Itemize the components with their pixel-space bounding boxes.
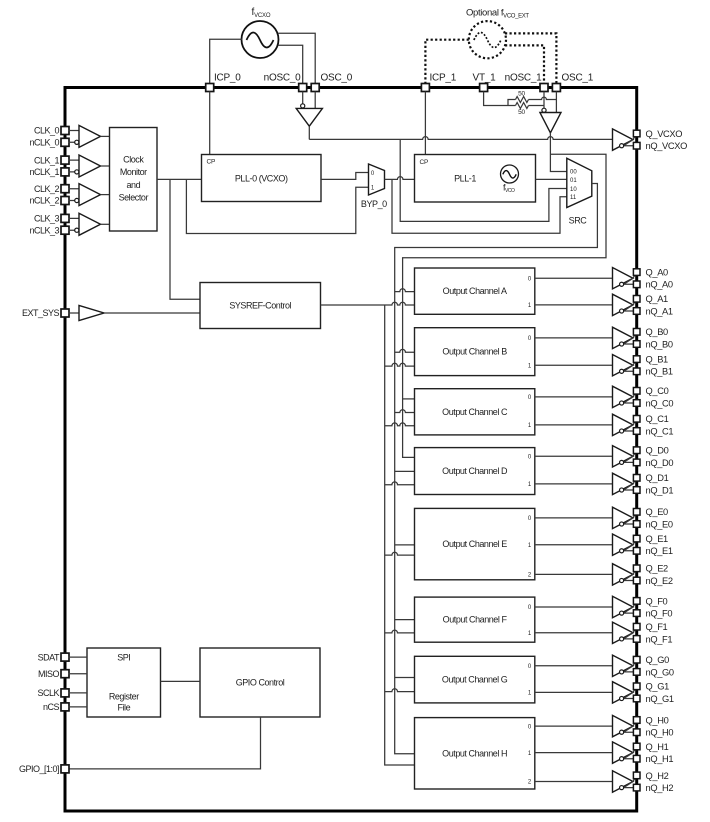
svg-text:Q_E1: Q_E1 bbox=[646, 534, 669, 544]
svg-text:Q_A1: Q_A1 bbox=[646, 294, 669, 304]
svg-text:SPI: SPI bbox=[117, 653, 130, 663]
svg-text:nCLK_3: nCLK_3 bbox=[29, 225, 59, 235]
svg-text:nCLK_0: nCLK_0 bbox=[29, 138, 59, 148]
svg-text:nCLK_1: nCLK_1 bbox=[29, 167, 59, 177]
svg-text:BYP_0: BYP_0 bbox=[361, 199, 387, 209]
svg-text:11: 11 bbox=[570, 195, 577, 201]
svg-text:PLL-1: PLL-1 bbox=[454, 173, 476, 183]
svg-text:nQ_C0: nQ_C0 bbox=[646, 398, 674, 408]
svg-text:Optional fVCO_EXT: Optional fVCO_EXT bbox=[466, 8, 529, 20]
svg-text:Q_F1: Q_F1 bbox=[646, 622, 668, 632]
svg-text:Q_C1: Q_C1 bbox=[646, 414, 669, 424]
svg-text:CP: CP bbox=[420, 159, 429, 166]
svg-text:GPIO_[1:0]: GPIO_[1:0] bbox=[19, 764, 59, 774]
svg-text:nQ_H2: nQ_H2 bbox=[646, 783, 674, 793]
svg-text:Q_H0: Q_H0 bbox=[646, 715, 669, 725]
svg-text:Q_E2: Q_E2 bbox=[646, 564, 669, 574]
svg-text:Clock: Clock bbox=[123, 155, 144, 165]
svg-text:nQ_G1: nQ_G1 bbox=[646, 694, 674, 704]
svg-text:nQ_A1: nQ_A1 bbox=[646, 306, 673, 316]
svg-text:50: 50 bbox=[518, 109, 525, 116]
svg-text:Selector: Selector bbox=[119, 193, 149, 203]
svg-text:Output Channel A: Output Channel A bbox=[443, 286, 507, 296]
svg-text:nQ_A0: nQ_A0 bbox=[646, 280, 673, 290]
svg-text:Q_G0: Q_G0 bbox=[646, 655, 670, 665]
svg-text:Register: Register bbox=[109, 692, 139, 702]
svg-text:OSC_1: OSC_1 bbox=[562, 73, 594, 84]
svg-text:nQ_B0: nQ_B0 bbox=[646, 339, 673, 349]
svg-text:nQ_D1: nQ_D1 bbox=[646, 485, 674, 495]
svg-text:Output Channel C: Output Channel C bbox=[442, 407, 508, 417]
svg-text:Q_D0: Q_D0 bbox=[646, 446, 669, 456]
svg-text:OSC_0: OSC_0 bbox=[321, 73, 353, 84]
svg-text:nQ_E1: nQ_E1 bbox=[646, 546, 673, 556]
svg-text:50: 50 bbox=[518, 91, 525, 98]
svg-text:Q_D1: Q_D1 bbox=[646, 473, 669, 483]
svg-text:SDAT: SDAT bbox=[38, 652, 60, 662]
svg-text:Output Channel F: Output Channel F bbox=[443, 615, 508, 625]
svg-text:Q_A0: Q_A0 bbox=[646, 268, 669, 278]
svg-text:01: 01 bbox=[570, 178, 577, 184]
svg-text:CP: CP bbox=[207, 159, 216, 166]
svg-text:MISO: MISO bbox=[38, 669, 60, 679]
svg-text:Output Channel G: Output Channel G bbox=[442, 675, 508, 685]
svg-text:nQ_C1: nQ_C1 bbox=[646, 426, 674, 436]
svg-text:Q_H1: Q_H1 bbox=[646, 742, 669, 752]
svg-text:and: and bbox=[126, 180, 140, 190]
svg-text:CLK_0: CLK_0 bbox=[34, 126, 60, 136]
svg-text:EXT_SYS: EXT_SYS bbox=[22, 308, 60, 318]
svg-text:Q_H2: Q_H2 bbox=[646, 771, 669, 781]
svg-text:ICP_0: ICP_0 bbox=[214, 73, 241, 84]
svg-text:nQ_D0: nQ_D0 bbox=[646, 458, 674, 468]
svg-text:SRC: SRC bbox=[569, 216, 588, 226]
svg-text:nCLK_2: nCLK_2 bbox=[29, 196, 59, 206]
svg-text:GPIO Control: GPIO Control bbox=[236, 678, 285, 688]
svg-text:Output Channel B: Output Channel B bbox=[442, 347, 507, 357]
svg-text:CLK_2: CLK_2 bbox=[34, 184, 60, 194]
svg-text:CLK_1: CLK_1 bbox=[34, 155, 60, 165]
svg-text:Monitor: Monitor bbox=[120, 167, 147, 177]
svg-text:CLK_3: CLK_3 bbox=[34, 214, 60, 224]
svg-text:nQ_H1: nQ_H1 bbox=[646, 754, 674, 764]
svg-text:00: 00 bbox=[570, 170, 577, 176]
svg-text:nCS: nCS bbox=[43, 702, 60, 712]
svg-text:nQ_E0: nQ_E0 bbox=[646, 519, 673, 529]
svg-text:Q_C0: Q_C0 bbox=[646, 386, 669, 396]
svg-text:fVCXO: fVCXO bbox=[252, 7, 271, 19]
svg-text:nQ_G0: nQ_G0 bbox=[646, 667, 674, 677]
svg-text:VT_1: VT_1 bbox=[473, 73, 497, 84]
svg-text:Q_VCXO: Q_VCXO bbox=[646, 129, 683, 139]
svg-text:nOSC_1: nOSC_1 bbox=[505, 73, 543, 84]
svg-text:SCLK: SCLK bbox=[37, 688, 59, 698]
svg-text:Q_B0: Q_B0 bbox=[646, 327, 669, 337]
svg-text:Q_E0: Q_E0 bbox=[646, 507, 669, 517]
svg-text:10: 10 bbox=[570, 187, 577, 193]
svg-text:Q_B1: Q_B1 bbox=[646, 355, 669, 365]
svg-text:nQ_VCXO: nQ_VCXO bbox=[646, 141, 688, 151]
svg-text:Q_G1: Q_G1 bbox=[646, 682, 670, 692]
svg-text:Output Channel D: Output Channel D bbox=[442, 466, 508, 476]
svg-text:nQ_E2: nQ_E2 bbox=[646, 576, 673, 586]
svg-text:Output Channel E: Output Channel E bbox=[442, 539, 507, 549]
svg-text:nQ_H0: nQ_H0 bbox=[646, 728, 674, 738]
svg-text:Q_F0: Q_F0 bbox=[646, 596, 668, 606]
svg-text:nQ_B1: nQ_B1 bbox=[646, 367, 673, 377]
svg-text:Output Channel H: Output Channel H bbox=[442, 748, 507, 758]
svg-text:nOSC_0: nOSC_0 bbox=[264, 73, 302, 84]
svg-text:ICP_1: ICP_1 bbox=[430, 73, 457, 84]
svg-text:nQ_F0: nQ_F0 bbox=[646, 609, 673, 619]
svg-text:SYSREF-Control: SYSREF-Control bbox=[229, 301, 291, 311]
svg-text:File: File bbox=[117, 703, 130, 713]
svg-text:nQ_F1: nQ_F1 bbox=[646, 634, 673, 644]
svg-text:PLL-0 (VCXO): PLL-0 (VCXO) bbox=[235, 173, 288, 183]
